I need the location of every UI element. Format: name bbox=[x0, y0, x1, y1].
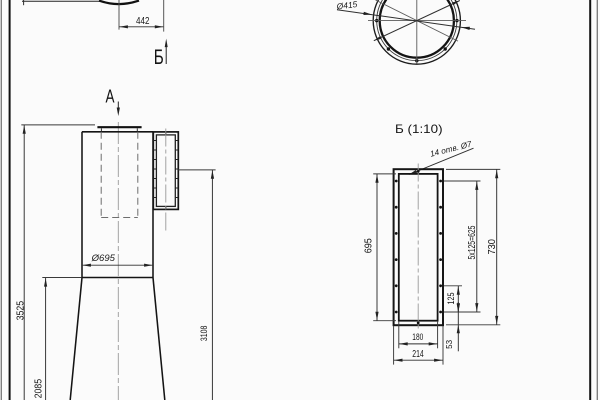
svg-text:214: 214 bbox=[412, 349, 424, 360]
svg-text:442: 442 bbox=[136, 15, 150, 27]
svg-text:125: 125 bbox=[446, 293, 457, 305]
svg-text:Ø415: Ø415 bbox=[335, 0, 358, 12]
svg-text:Ø695: Ø695 bbox=[91, 253, 116, 264]
svg-text:A: A bbox=[106, 87, 115, 107]
svg-text:5x125=625: 5x125=625 bbox=[467, 225, 478, 259]
svg-text:3108: 3108 bbox=[199, 326, 209, 342]
svg-text:53: 53 bbox=[444, 340, 454, 349]
svg-text:Б: Б bbox=[154, 46, 164, 69]
svg-text:180: 180 bbox=[412, 332, 423, 343]
svg-text:3525: 3525 bbox=[15, 300, 26, 320]
svg-text:14 отв. Ø7: 14 отв. Ø7 bbox=[429, 140, 473, 159]
svg-text:730: 730 bbox=[486, 239, 498, 255]
svg-text:Б (1:10): Б (1:10) bbox=[395, 122, 443, 136]
svg-text:695: 695 bbox=[362, 238, 374, 253]
svg-text:2085: 2085 bbox=[34, 378, 45, 398]
